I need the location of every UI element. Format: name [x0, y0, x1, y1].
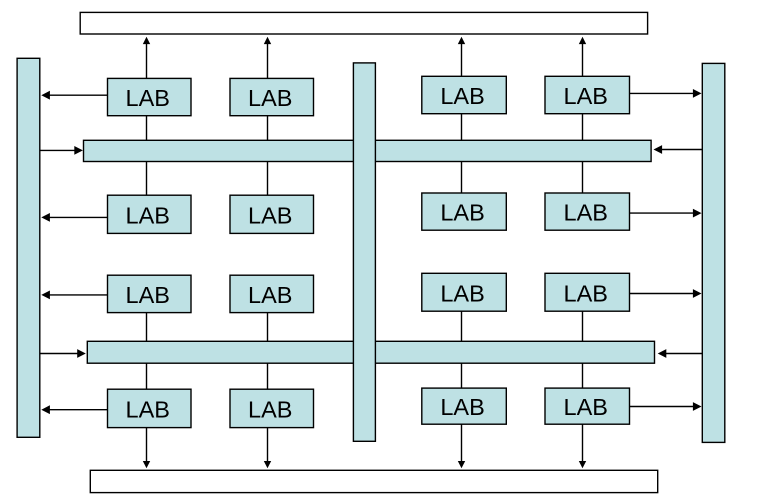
svg-text:LAB: LAB [126, 396, 170, 422]
svg-text:LAB: LAB [248, 396, 292, 422]
svg-text:LAB: LAB [248, 202, 292, 228]
svg-text:LAB: LAB [126, 282, 170, 308]
svg-text:LAB: LAB [564, 394, 608, 420]
svg-text:LAB: LAB [564, 200, 608, 226]
svg-text:LAB: LAB [440, 280, 484, 306]
svg-text:LAB: LAB [440, 200, 484, 226]
svg-text:LAB: LAB [248, 282, 292, 308]
svg-text:LAB: LAB [126, 85, 170, 111]
svg-text:LAB: LAB [248, 85, 292, 111]
svg-text:LAB: LAB [440, 83, 484, 109]
svg-text:LAB: LAB [126, 202, 170, 228]
svg-text:LAB: LAB [440, 394, 484, 420]
svg-text:LAB: LAB [564, 83, 608, 109]
svg-text:LAB: LAB [564, 280, 608, 306]
